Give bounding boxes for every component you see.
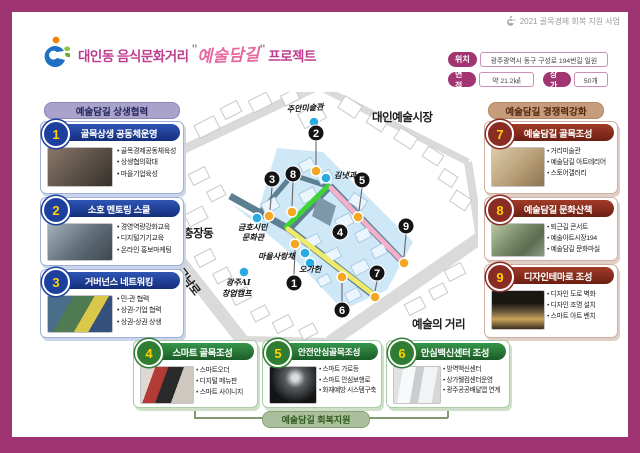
bullet: 스마트 사이니지: [196, 387, 255, 398]
location-label: 위치: [448, 52, 477, 67]
project-box-3: 3 거버넌스 네트워킹 민-관 협력 상권-기업 협력 상권-상권 상생: [40, 269, 184, 338]
project-5-photo: [269, 366, 317, 404]
label-kumho-civic-hall-1: 금호시민: [238, 222, 269, 232]
bullet: 민-관 협력: [117, 294, 181, 305]
project-box-1: 1 골목상생 공동체운영 골목경제공동체육성 상생협의확대 마을기업육성: [40, 121, 184, 194]
project-box-8: 8 예술담길 문화산책 퇴근길 콘서트 예술아트시장194 예술담길 문화마실: [484, 197, 618, 261]
label-ogaheon: 오가헌: [299, 264, 323, 274]
program-badge: 2021 골목경제 회복 지원 사업: [505, 15, 620, 28]
location-value: 광주광역시 동구 구성로 194번길 일원: [480, 52, 608, 67]
project-box-5: 5 안전안심골목조성 스마트 가로등 스마트 안심보행로 화재예방 시스템구축: [262, 340, 382, 408]
project-8-bullets: 퇴근길 콘서트 예술아트시장194 예술담길 문화마실: [547, 222, 615, 255]
project-5-title: 안전안심골목조성: [280, 343, 378, 360]
street-map: 1 2 3 4 5 6 7 8 9 주안미술관 김냇과 금호시민 문화관 마을사…: [168, 92, 478, 342]
label-gwangju-ai-1: 광주AI: [226, 277, 251, 287]
bullet: 마을기업육성: [117, 169, 181, 180]
project-box-9: 9 디자인테마로 조성 디자인 도로 벽화 디자인 조명 설치 스마트 아트 벤…: [484, 264, 618, 338]
bullet: 예술아트시장194: [547, 233, 615, 244]
project-5-number: 5: [264, 339, 292, 367]
svg-text:3: 3: [269, 174, 275, 186]
project-9-bullets: 디자인 도로 벽화 디자인 조명 설치 스마트 아트 벤치: [547, 289, 615, 322]
project-box-2: 2 소호 멘토링 스쿨 경영역량강화교육 디지털기기교육 온라인 홍보마케팅: [40, 197, 184, 266]
label-kumho-civic-hall-2: 문화관: [242, 232, 266, 242]
map-marker-1: 1: [286, 275, 302, 291]
section-right-title: 예술담길 경쟁력강화: [488, 102, 604, 119]
bullet: 스토어갤러리: [547, 168, 615, 179]
project-box-7: 7 예술담길 골목조성 거리미술관 예술담길 아트테리어 스토어갤러리: [484, 121, 618, 194]
bullet: 디자인 조명 설치: [547, 300, 615, 311]
map-marker-2: 2: [308, 125, 324, 141]
project-8-number: 8: [486, 196, 514, 224]
svg-text:2: 2: [313, 128, 319, 140]
bullet: 경영역량강화교육: [117, 222, 181, 233]
svg-text:1: 1: [291, 278, 297, 290]
project-5-bullets: 스마트 가로등 스마트 안심보행로 화재예방 시스템구축: [319, 365, 379, 397]
title-suffix: 프로젝트: [268, 49, 316, 64]
label-kimnaetgwa: 김냇과: [334, 170, 358, 180]
project-8-title: 예술담길 문화산책: [502, 200, 614, 217]
svg-text:7: 7: [374, 268, 380, 280]
project-3-title: 거버넌스 네트워킹: [58, 272, 180, 289]
project-1-number: 1: [42, 120, 70, 148]
bullet: 스마트오더: [196, 365, 255, 376]
project-1-bullets: 골목경제공동체육성 상생협의확대 마을기업육성: [117, 146, 181, 180]
shops-label: 상가: [543, 72, 571, 87]
project-6-number: 6: [388, 339, 416, 367]
map-marker-9: 9: [398, 218, 414, 234]
label-daein-art-market: 대인예술시장: [372, 110, 433, 124]
project-box-4: 4 스마트 골목조성 스마트오더 디지털 메뉴판 스마트 사이니지: [133, 340, 258, 408]
section-left-title: 예술담길 상생협력: [44, 102, 180, 119]
bullet: 스마트 가로등: [319, 365, 379, 376]
project-1-title: 골목상생 공동체운영: [58, 124, 180, 141]
bullet: 거리미술관: [547, 146, 615, 157]
svg-text:9: 9: [403, 221, 409, 233]
map-marker-3: 3: [264, 171, 280, 187]
project-3-number: 3: [42, 268, 70, 296]
poster: 대인동 음식문화거리 "예술담길" 프로젝트 2021 골목경제 회복 지원 사…: [0, 0, 640, 453]
project-6-title: 안심백신센터 조성: [404, 343, 506, 360]
bullet: 상가웰컴센터운영: [443, 376, 507, 387]
program-text: 2021 골목경제 회복 지원 사업: [520, 16, 620, 27]
bullet: 광주공공배달앱 연계: [443, 386, 507, 397]
bullet: 온라인 홍보마케팅: [117, 245, 181, 256]
map-marker-7: 7: [369, 265, 385, 281]
project-2-photo: [47, 223, 113, 261]
svg-text:6: 6: [339, 305, 345, 317]
project-4-bullets: 스마트오더 디지털 메뉴판 스마트 사이니지: [196, 365, 255, 398]
project-2-title: 소호 멘토링 스쿨: [58, 200, 180, 217]
bullet: 상권-상권 상생: [117, 317, 181, 328]
project-6-photo: [393, 366, 441, 404]
footer-pill: 예술담길 회복지원: [262, 411, 370, 428]
project-2-bullets: 경영역량강화교육 디지털기기교육 온라인 홍보마케팅: [117, 222, 181, 256]
project-box-6: 6 안심백신센터 조성 방역백신센터 상가웰컴센터운영 광주공공배달앱 연계: [386, 340, 510, 408]
project-7-photo: [491, 147, 545, 187]
title-script: 예술담길: [197, 41, 261, 67]
bullet: 골목경제공동체육성: [117, 146, 181, 157]
bullet: 디지털기기교육: [117, 233, 181, 244]
map-marker-6: 6: [334, 302, 350, 318]
project-3-photo: [47, 295, 113, 333]
info-table: 위치 광주광역시 동구 구성로 194번길 일원 면적 약 21.2㎢ 상가 5…: [448, 52, 608, 92]
project-2-number: 2: [42, 196, 70, 224]
connector-footer-left: [194, 417, 264, 419]
project-8-photo: [491, 223, 545, 257]
label-chungjang-dong: 충장동: [183, 226, 214, 240]
bullet: 퇴근길 콘서트: [547, 222, 615, 233]
map-marker-8: 8: [285, 166, 301, 182]
bullet: 디자인 도로 벽화: [547, 289, 615, 300]
project-6-bullets: 방역백신센터 상가웰컴센터운영 광주공공배달앱 연계: [443, 365, 507, 397]
svg-text:8: 8: [290, 169, 296, 181]
area-value: 약 21.2㎢: [479, 72, 534, 87]
program-logo-icon: [505, 15, 516, 28]
bullet: 예술담길 아트테리어: [547, 157, 615, 168]
connector-footer-right: [368, 417, 448, 419]
project-7-title: 예술담길 골목조성: [502, 124, 614, 141]
bullet: 상권-기업 협력: [117, 305, 181, 316]
bullet: 스마트 안심보행로: [319, 376, 379, 387]
project-4-title: 스마트 골목조성: [151, 343, 254, 360]
svg-text:4: 4: [337, 227, 344, 239]
bullet: 디지털 메뉴판: [196, 376, 255, 387]
info-row-location: 위치 광주광역시 동구 구성로 194번길 일원: [448, 52, 608, 67]
label-maeul-sarangchae: 마을사랑채: [258, 251, 296, 261]
svg-text:5: 5: [359, 175, 365, 187]
project-9-title: 디자인테마로 조성: [502, 267, 614, 284]
donggu-logo-icon: [40, 34, 70, 74]
project-4-number: 4: [135, 339, 163, 367]
bullet: 방역백신센터: [443, 365, 507, 376]
project-7-bullets: 거리미술관 예술담길 아트테리어 스토어갤러리: [547, 146, 615, 179]
bullet: 화재예방 시스템구축: [319, 386, 379, 397]
project-9-number: 9: [486, 263, 514, 291]
header: 대인동 음식문화거리 "예술담길" 프로젝트: [40, 34, 316, 74]
project-7-number: 7: [486, 120, 514, 148]
label-gwangju-ai-2: 창업캠프: [222, 288, 253, 298]
page-title: 대인동 음식문화거리 "예술담길" 프로젝트: [78, 42, 316, 66]
bullet: 상생협의확대: [117, 157, 181, 168]
area-label: 면적: [448, 72, 476, 87]
shops-value: 50개: [574, 72, 608, 87]
bullet: 예술담길 문화마실: [547, 244, 615, 255]
project-4-photo: [140, 366, 194, 404]
map-marker-4: 4: [332, 224, 348, 240]
title-prefix: 대인동 음식문화거리: [78, 49, 189, 64]
close-quote: ": [260, 42, 265, 56]
bullet: 스마트 아트 벤치: [547, 311, 615, 322]
project-3-bullets: 민-관 협력 상권-기업 협력 상권-상권 상생: [117, 294, 181, 328]
project-9-photo: [491, 290, 545, 330]
label-art-street: 예술의 거리: [412, 317, 465, 331]
map-marker-5: 5: [354, 172, 370, 188]
project-1-photo: [47, 147, 113, 187]
info-row-area-shops: 면적 약 21.2㎢ 상가 50개: [448, 72, 608, 87]
